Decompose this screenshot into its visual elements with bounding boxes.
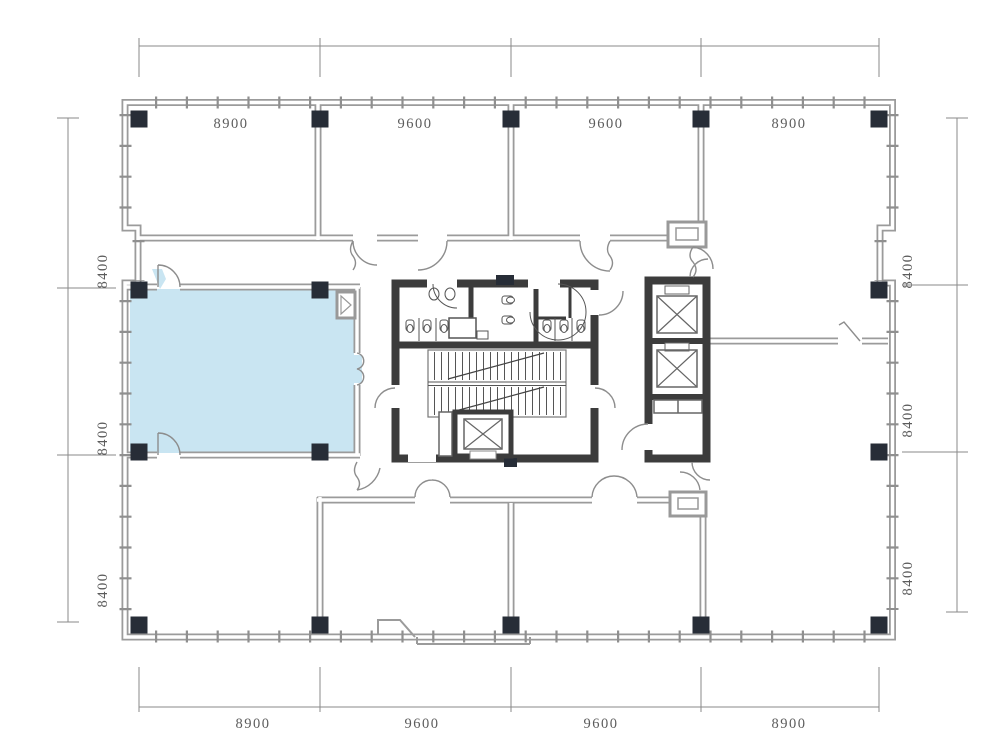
door-swing — [592, 476, 637, 497]
door-swing — [418, 241, 447, 270]
toilet-icon — [423, 320, 431, 333]
counter — [477, 331, 488, 339]
dim-label: 8400 — [900, 561, 916, 596]
dim-label: 9600 — [405, 716, 440, 732]
dim-label: 8900 — [772, 716, 807, 732]
column — [871, 282, 888, 299]
dim-label: 8900 — [772, 116, 807, 132]
dim-label: 8400 — [95, 573, 111, 608]
column — [503, 617, 520, 634]
floor-plan-drawing: 8900 9600 9600 8900 8900 9600 9600 8900 … — [0, 0, 1000, 750]
column — [131, 111, 148, 128]
toilet-icon — [406, 320, 414, 333]
column — [131, 282, 148, 299]
stair-core — [390, 275, 600, 467]
toilet-icon — [502, 316, 515, 324]
toilet-icon — [560, 320, 568, 333]
counter — [449, 318, 476, 338]
door-stop — [504, 458, 517, 467]
toilet-icon — [543, 320, 551, 333]
dimension-bottom: 8900 9600 9600 8900 — [139, 667, 879, 732]
column — [131, 617, 148, 634]
sink-icon — [445, 288, 455, 300]
door-swing — [599, 291, 623, 315]
column — [693, 617, 710, 634]
column — [312, 617, 329, 634]
column — [131, 444, 148, 461]
door-swing — [355, 462, 381, 490]
dim-label: 8400 — [900, 403, 916, 438]
dim-label: 8400 — [900, 254, 916, 289]
column — [693, 111, 710, 128]
dim-label: 9600 — [589, 116, 624, 132]
dim-label: 8900 — [236, 716, 271, 732]
door-swing — [839, 322, 860, 341]
elevator-bank — [644, 277, 710, 462]
floor-plan-page: 8900 9600 9600 8900 8900 9600 9600 8900 … — [0, 0, 1000, 750]
elevator-icon — [439, 412, 511, 459]
dim-label: 8400 — [95, 421, 111, 456]
column — [312, 444, 329, 461]
dimension-left: 8400 8400 8400 — [57, 118, 116, 622]
stairs — [428, 350, 566, 417]
toilet-icon — [440, 320, 448, 333]
bank-door-opening — [644, 424, 654, 450]
dim-label: 8400 — [95, 254, 111, 289]
column — [312, 282, 329, 299]
column — [871, 617, 888, 634]
dimension-right: 8400 8400 8400 — [900, 118, 968, 612]
dim-label: 9600 — [584, 716, 619, 732]
door-stop — [496, 275, 514, 285]
column — [312, 111, 329, 128]
column — [871, 444, 888, 461]
door-swing — [692, 462, 710, 480]
door-swing — [580, 241, 613, 271]
door-swing — [690, 247, 713, 277]
door-swing — [415, 480, 450, 497]
toilet-icon — [502, 296, 515, 304]
dim-label: 9600 — [398, 116, 433, 132]
door-swing — [351, 241, 378, 270]
column — [871, 111, 888, 128]
column — [503, 111, 520, 128]
dim-label: 8900 — [214, 116, 249, 132]
